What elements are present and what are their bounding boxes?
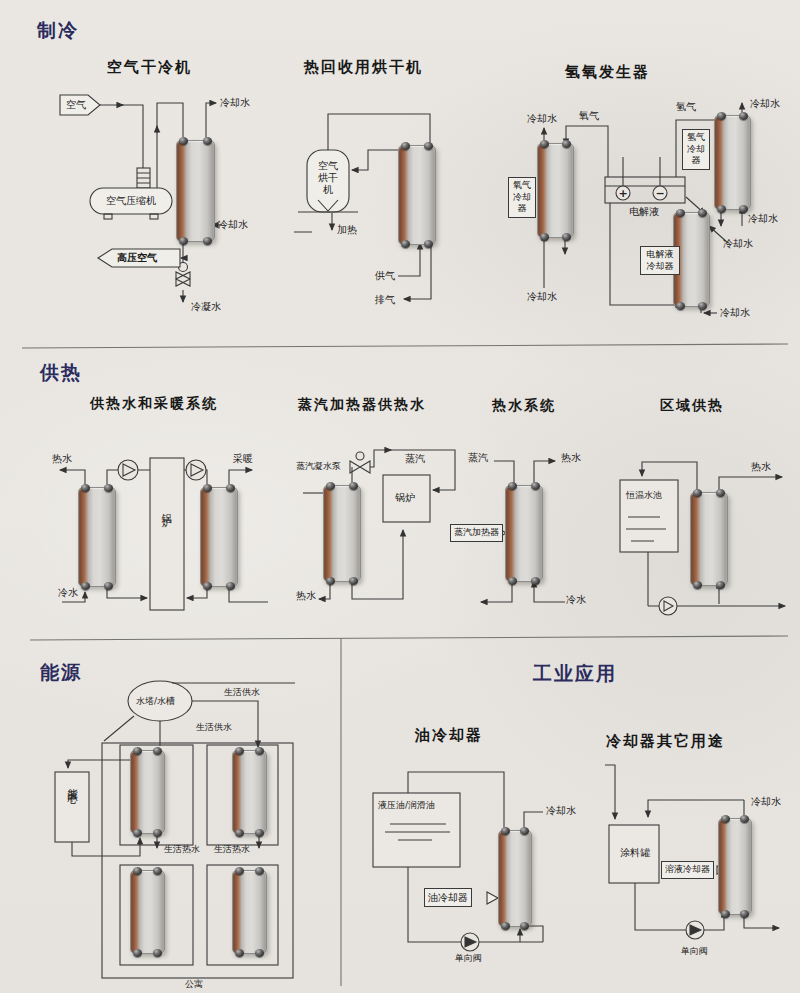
label-cooling-water: 冷却水 (720, 307, 750, 319)
label-cooling-water-in: 冷却水 (218, 219, 248, 231)
label-paint-tank: 涂料罐 (620, 847, 650, 859)
label-cooling-water: 冷却水 (527, 291, 557, 303)
label-cooling-water: 冷却水 (750, 98, 780, 110)
label-electrolyte-cooler: 电解液冷却器 (640, 246, 680, 275)
anode-plus-symbol: + (615, 187, 631, 200)
heat-exchanger (690, 492, 728, 586)
label-exhaust-gas: 排气 (375, 294, 395, 306)
label-boiler: 锅炉 (160, 505, 172, 513)
label-apartment: 公寓 (185, 979, 203, 990)
cathode-minus-symbol: − (652, 187, 668, 200)
diagram-title-cooler-other-uses: 冷却器其它用途 (606, 732, 725, 751)
label-air: 空气 (66, 99, 86, 111)
label-domestic-supply: 生活供水 (196, 722, 232, 733)
heat-exchanger (323, 485, 361, 582)
label-thermostatic-pool: 恒温水池 (626, 490, 662, 501)
label-supply-gas: 供气 (375, 270, 395, 282)
label-steam: 蒸汽 (405, 453, 425, 465)
section-header-heating: 供热 (40, 360, 82, 386)
label-solution-cooler: 溶液冷却器 (661, 861, 714, 879)
label-oil-cooler: 油冷却器 (424, 888, 472, 907)
label-cooling-water: 冷却水 (751, 796, 781, 808)
heat-exchanger (714, 115, 751, 210)
divider-refrigeration-heating (22, 344, 788, 348)
label-air-compressor: 空气压缩机 (106, 195, 156, 207)
label-steam-condensate-pump: 蒸汽凝水泵 (296, 461, 341, 472)
diagram-title-district-heating: 区域供热 (660, 397, 724, 415)
heat-exchanger (498, 830, 532, 927)
diagram-title-air-dry-cooler: 空气干冷机 (107, 58, 192, 77)
diagram-title-hot-water-system: 热水系统 (492, 397, 556, 415)
label-energy-center: 能源中心 (66, 780, 78, 788)
label-domestic-hot-water: 生活热水 (214, 844, 250, 855)
label-high-pressure-air: 高压空气 (117, 252, 157, 264)
label-cooling-water: 冷却水 (748, 213, 778, 225)
section-header-industrial: 工业应用 (533, 661, 617, 687)
label-steam: 蒸汽 (468, 452, 488, 464)
valve-icon (176, 272, 190, 286)
divider-heating-bottom (30, 636, 788, 640)
label-cooling-water: 冷却水 (527, 113, 557, 125)
label-electrolyte: 电解液 (629, 206, 659, 218)
diagram-title-oil-cooler: 油冷却器 (415, 726, 483, 745)
heat-exchanger (505, 485, 543, 582)
boiler-shape (150, 458, 184, 610)
label-hot-water: 热水 (296, 590, 316, 602)
heat-exchanger (130, 870, 165, 954)
callout-pointer (487, 892, 498, 904)
pump-icon (659, 597, 677, 615)
label-water-tower: 水塔/水槽 (136, 696, 175, 707)
label-domestic-hot-water: 生活热水 (164, 844, 200, 855)
label-cooling-water: 冷却水 (546, 805, 576, 817)
label-check-valve: 单向阀 (681, 946, 708, 957)
label-domestic-supply: 生活供水 (224, 687, 260, 698)
label-check-valve: 单向阀 (455, 953, 482, 964)
heat-exchanger (176, 140, 215, 242)
heat-exchanger (78, 487, 116, 587)
heat-exchanger (200, 487, 238, 587)
label-cooling-water: 冷却水 (723, 238, 753, 250)
label-hydrogen: 氢气 (676, 101, 696, 113)
label-hydraulic-oil: 液压油/润滑油 (378, 800, 435, 811)
label-h водаot-water: 热水 (751, 461, 771, 473)
heat-exchanger (398, 145, 436, 245)
heat-exchanger (232, 870, 267, 954)
heat-exchanger (130, 750, 165, 834)
label-hot-water: 热水 (561, 452, 581, 464)
section-header-energy: 能源 (40, 660, 82, 686)
label-cooling-water-out: 冷却水 (220, 97, 250, 109)
label-heating: 加热 (337, 224, 357, 236)
label-oxygen: 氧气 (579, 110, 599, 122)
diagram-title-hydrogen-oxygen-generator: 氢氧发生器 (565, 63, 650, 82)
diagram-title-steam-heater-hot-water: 蒸汽加热器供热水 (298, 396, 426, 414)
section-header-refrigeration: 制冷 (37, 18, 79, 44)
label-hydrogen-cooler: 氢气冷却器 (682, 129, 710, 170)
diagram-title-heat-recovery-dryer: 热回收用烘干机 (304, 58, 423, 77)
label-air-dryer: 空气烘干机 (316, 160, 340, 196)
diagram-title-hot-water-heating-system: 供热水和采暖系统 (90, 395, 218, 413)
label-cold-water: 冷水 (566, 594, 586, 606)
label-boiler: 锅炉 (395, 492, 415, 504)
valve-icon (350, 461, 370, 473)
heat-exchanger (537, 143, 574, 238)
label-heating-supply: 采暖 (233, 453, 253, 465)
label-condensate: 冷凝水 (191, 301, 221, 313)
label-hot-water: 热水 (52, 453, 72, 465)
label-cold-water: 冷水 (58, 587, 78, 599)
heat-exchanger (718, 818, 752, 915)
label-oxygen-cooler: 氧气冷却器 (508, 177, 536, 218)
heat-exchanger (232, 750, 267, 834)
label-steam-heater: 蒸汽加热器 (450, 524, 503, 542)
catalog-page: 制冷 供热 能源 工业应用 空气干冷机 热回收用烘干机 氢氧发生器 供热水和采暖… (0, 0, 800, 993)
